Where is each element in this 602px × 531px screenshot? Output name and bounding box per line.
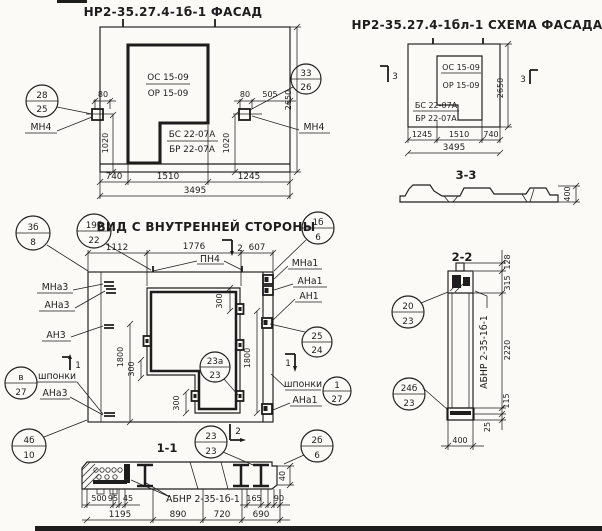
marker-bottom: 6 [315,233,321,243]
rebar-dot [105,475,109,479]
schema-dim-1245: 1245 [412,130,432,139]
marker-bottom: 27 [15,388,26,398]
section-2-2-circle-24b-23: 24б 23 [393,378,447,410]
schema-section-flag-left-mark [380,66,388,82]
inner-flag-bottom: 2 [235,427,241,437]
marker-bottom: 23 [209,371,220,381]
section-2-2: 2-2 АБНР 2-35-1б-1 128 315 2220 115 25 4… [392,250,512,450]
section-2-2-dim-115: 115 [502,393,511,408]
facade-dim-1020-left: 1020 [101,133,110,153]
marker-leader [44,420,87,437]
inner-dim-300-bot: 300 [172,395,181,410]
inner-side-view: ВИД С ВНУТРЕННЕЙ СТОРОНЫ 3б 8 19б 22 111… [5,212,351,465]
inner-dim-row-line [85,250,276,286]
facade-dim-3495: 3495 [184,186,206,196]
marker-bottom: 23 [205,447,216,457]
section-1-1-dim-40: 40 [278,471,287,481]
rebar-dot [100,468,104,472]
inner-circle-2b6: 2б 6 [284,430,333,464]
inner-ana1b-label: АНа1 [293,395,318,406]
marker-top: 19б [86,221,103,231]
inner-an1-leader [272,299,322,321]
section-2-2-dim-128: 128 [503,254,512,269]
inner-ana1-label: АНа1 [298,276,323,287]
section-1-1-rebar [94,468,122,479]
facade-schema-view: НР2-35.27.4-1бл-1 СХЕМА ФАСАДА ОС 15-09 … [352,18,602,156]
section-1-1: 1-1 АБНР 2-35-1б-1 500 95 45 165 90 40 [82,441,294,523]
inner-flag-right-arrow [293,366,297,372]
facade-or-label: ОР 15-09 [148,89,189,99]
drawing-canvas: НР2-35.27.4-1б-1 ФАСАД ОС 15-09 ОР 15-09… [0,0,602,531]
rebar-dot [97,475,101,479]
facade-lifting-ticks [123,19,215,27]
section-1-1-ibeam-3 [253,465,269,486]
strip-anchor-dot [264,320,268,325]
schema-dim-740: 740 [483,130,498,139]
inner-left-anchor-bars [104,282,116,416]
inner-dim-300-mid-line [138,357,144,381]
schema-br-label: БР 22-07А [415,114,457,123]
section-1-1-dim-165: 165 [246,494,261,503]
inner-dim-300-top: 300 [215,293,224,308]
marker-leader [423,388,447,409]
facade-dim-1510: 1510 [157,172,180,182]
schema-lifting-ticks [433,38,483,44]
strip-anchor-dot [265,277,269,282]
marker-top: 3б [27,223,38,233]
inner-an3-label: АН3 [46,330,65,341]
schema-section-flag-right-mark [530,70,538,84]
facade-dim-505-right: 505 [262,90,277,99]
inner-flag-bottom-arrow [240,438,246,442]
inner-dim-1776: 1776 [183,242,206,252]
marker-leader [47,245,88,271]
inner-circle-1-27: 1 27 [323,377,351,405]
inner-circle-25-24: 25 24 [270,324,332,357]
section-1-1-ibeam-1 [137,465,153,486]
inner-dim-1112: 1112 [106,243,128,253]
facade-dim-80-left: 80 [98,90,108,99]
marker-leader [223,452,253,465]
inner-shponki-left-label: шпонки [38,371,76,382]
rebar-dot [112,468,116,472]
strip-anchor-dot [264,406,268,411]
section-1-1-dim-95: 95 [108,494,118,503]
marker-bottom: 10 [23,451,35,461]
window-anchor-dot [239,394,242,398]
section-2-2-title: 2-2 [452,250,473,264]
rebar-dot [118,468,122,472]
marker-bottom: 25 [36,105,47,115]
facade-dim-1245: 1245 [238,172,260,182]
marker-top: 28 [36,91,47,101]
section-2-2-dim-315: 315 [503,275,512,290]
inner-lifting-ticks [153,266,242,272]
facade-dim-740: 740 [106,172,123,182]
inner-window-anchors [144,304,244,401]
facade-dim-1020-right-line [232,112,238,175]
marker-bottom: 26 [300,83,312,93]
section-1-1-dim-45: 45 [123,494,133,503]
schema-dim-1510: 1510 [449,130,469,139]
section-2-2-part-leader [475,291,487,308]
inner-title: ВИД С ВНУТРЕННЕЙ СТОРОНЫ [96,219,315,234]
scan-artifact-top [57,0,87,3]
inner-dim-607: 607 [249,243,266,253]
section-1-1-break-lines [190,462,228,489]
section-1-1-dim-690: 690 [253,510,270,520]
facade-view: НР2-35.27.4-1б-1 ФАСАД ОС 15-09 ОР 15-09… [25,5,330,199]
window-anchor-dot [239,307,242,311]
inner-mna3-label: МНа3 [42,282,69,293]
section-2-2-dim-25: 25 [483,422,492,432]
section-2-2-body-inner-lines [452,293,469,408]
strip-anchor-dot [265,288,269,293]
schema-title: НР2-35.27.4-1бл-1 СХЕМА ФАСАДА [352,18,602,32]
marker-bottom: 23 [403,399,414,409]
section-2-2-bottom-plate [450,411,471,415]
section-2-2-dim-400: 400 [452,436,467,445]
section-1-1-dim-500: 500 [91,494,106,503]
section-3-3: 3-3 400 [400,168,580,205]
facade-anchor-left [92,109,103,120]
inner-dim-300-top-line [227,285,233,314]
inner-circle-23-23: 23 23 [195,426,253,465]
section-2-2-circle-20-23: 20 23 [392,292,448,328]
inner-pn4-leaders [153,261,242,271]
section-1-1-dim-90: 90 [274,494,284,503]
facade-mn4-left: МН4 [31,122,52,133]
inner-circle-v27: в 27 [5,367,37,399]
inner-flag-left: 1 [75,361,81,371]
marker-top: 24б [401,384,418,394]
inner-circle-4b10: 4б 10 [12,420,87,463]
section-3-3-dim-400: 400 [563,186,572,201]
marker-bottom: 27 [331,395,342,405]
facade-dim-2650: 2650 [284,90,293,110]
marker-bottom: 23 [402,317,413,327]
facade-mn4-right: МН4 [304,122,325,133]
inner-ana3b-leader [40,397,103,415]
inner-flag-top: 2 [237,244,243,254]
schema-dim-3495: 3495 [443,143,465,153]
inner-pn4-label: ПН4 [200,254,220,265]
inner-dim-300-bot-line [183,389,189,416]
section-1-1-hatch [82,462,99,489]
section-2-2-dim-2220: 2220 [503,340,512,360]
section-1-1-dim-1195: 1195 [109,510,131,520]
rebar-dot [106,468,110,472]
schema-dim-2650: 2650 [496,78,505,98]
section-2-2-dim-400-line [441,420,484,450]
marker-leader [284,455,304,464]
inner-ana3b-label: АНа3 [43,388,68,399]
section-1-1-title: 1-1 [157,441,178,455]
inner-dim-1800-right-line [254,308,260,416]
section-1-1-ibeam-2 [233,465,249,486]
facade-circle-left: 28 25 [26,85,92,117]
inner-dim-300-mid: 300 [127,361,136,376]
marker-bottom: 22 [88,236,99,246]
section-2-2-top-anchor-fill2 [463,277,470,286]
inner-an1-label: АН1 [299,291,318,302]
marker-top: 33 [300,69,311,79]
window-anchor-dot [194,394,197,398]
schema-os-label: ОС 15-09 [442,63,480,72]
marker-top: в [18,373,23,383]
marker-bottom: 6 [314,451,320,461]
facade-dim-80-left-line [92,98,116,109]
inner-circle-23a-23: 23а 23 [200,352,238,395]
marker-top: 4б [23,436,34,446]
marker-top: 23а [207,357,224,367]
inner-right-anchors [262,275,273,414]
section-1-1-plate-horizontal [93,480,127,484]
marker-top: 2б [311,436,322,446]
marker-leader [421,292,448,303]
facade-dim-1020-right: 1020 [222,133,231,153]
facade-dim-80-right: 80 [240,90,250,99]
marker-top: 23 [205,432,216,442]
facade-title: НР2-35.27.4-1б-1 ФАСАД [84,5,263,19]
blueprint-sheet: НР2-35.27.4-1б-1 ФАСАД ОС 15-09 ОР 15-09… [0,0,602,531]
schema-bs-label: БС 22-07А [415,101,458,110]
inner-ana3-label: АНа3 [45,300,70,311]
scan-artifact-bottom [35,526,602,531]
window-anchor-dot [239,343,242,347]
marker-top: 1б [312,218,323,228]
section-1-1-plate-vertical [124,464,130,483]
facade-dim-1020-left-line [110,112,116,175]
schema-or-label: ОР 15-09 [443,81,480,90]
schema-section-flag-left: 3 [392,72,398,82]
marker-top: 20 [402,302,414,312]
schema-section-flag-right: 3 [520,75,526,85]
section-3-3-profile [400,185,558,202]
inner-flag-right: 1 [285,359,291,369]
facade-os-label: ОС 15-09 [147,73,188,83]
marker-bottom: 8 [30,238,36,248]
facade-anchor-right [239,109,250,120]
inner-circle-3b8: 3б 8 [16,216,88,271]
inner-flag-top-arrow [230,251,234,256]
inner-dim-1800-right: 1800 [243,348,252,368]
section-1-1-dim-890: 890 [170,510,187,520]
rebar-dot [113,475,117,479]
marker-leader [57,107,92,114]
marker-bottom: 24 [311,346,323,356]
marker-leader [270,324,305,332]
inner-shponki-right-label: шпонки [284,379,322,390]
section-2-2-part-label: АБНР 2-35-1б-1 [479,315,490,389]
section-1-1-dim-720: 720 [214,510,231,520]
marker-top: 25 [311,332,322,342]
section-2-2-upstand [456,263,464,271]
marker-top: 1 [334,381,340,391]
inner-mna1-label: МНа1 [292,258,319,269]
window-anchor-dot [146,339,149,343]
section-3-3-title: 3-3 [456,168,477,182]
inner-dim-1800-left: 1800 [116,347,125,367]
